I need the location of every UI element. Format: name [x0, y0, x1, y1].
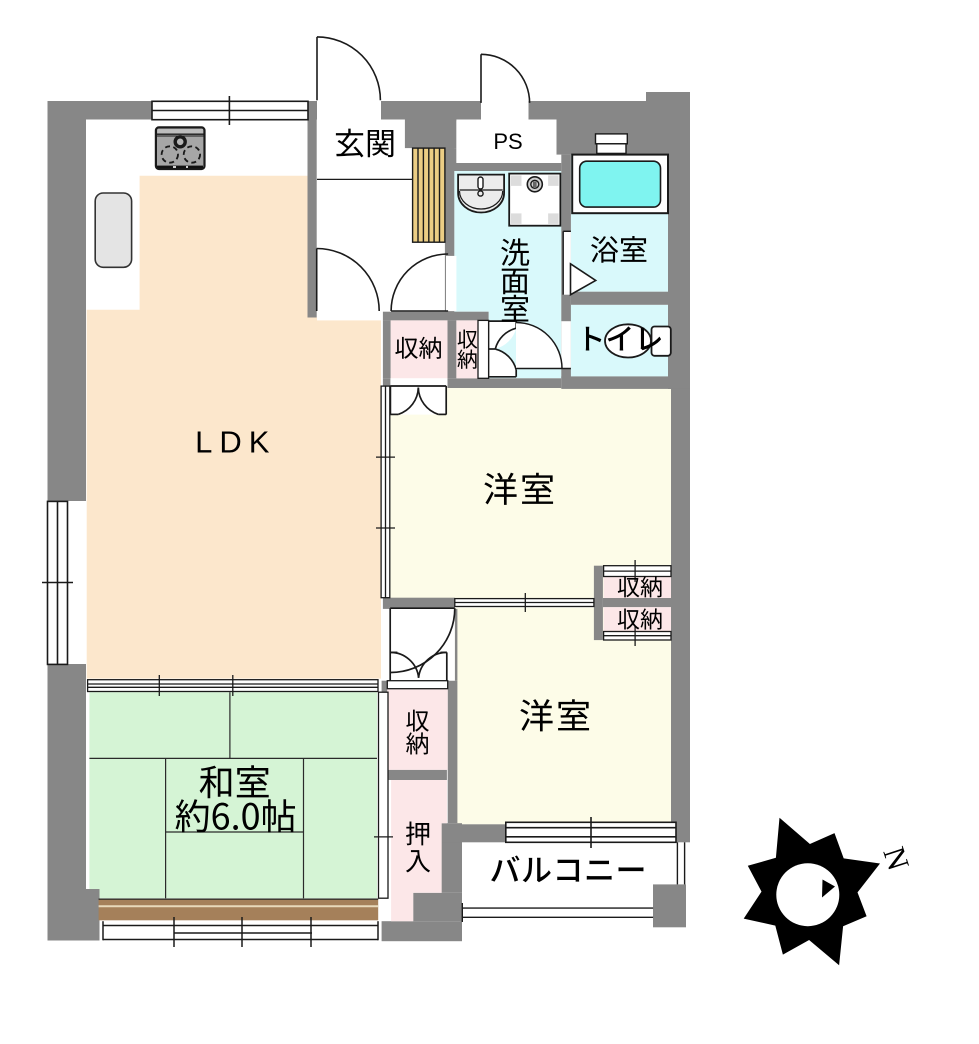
svg-text:PS: PS — [493, 129, 522, 154]
svg-text:LDK: LDK — [195, 424, 276, 459]
